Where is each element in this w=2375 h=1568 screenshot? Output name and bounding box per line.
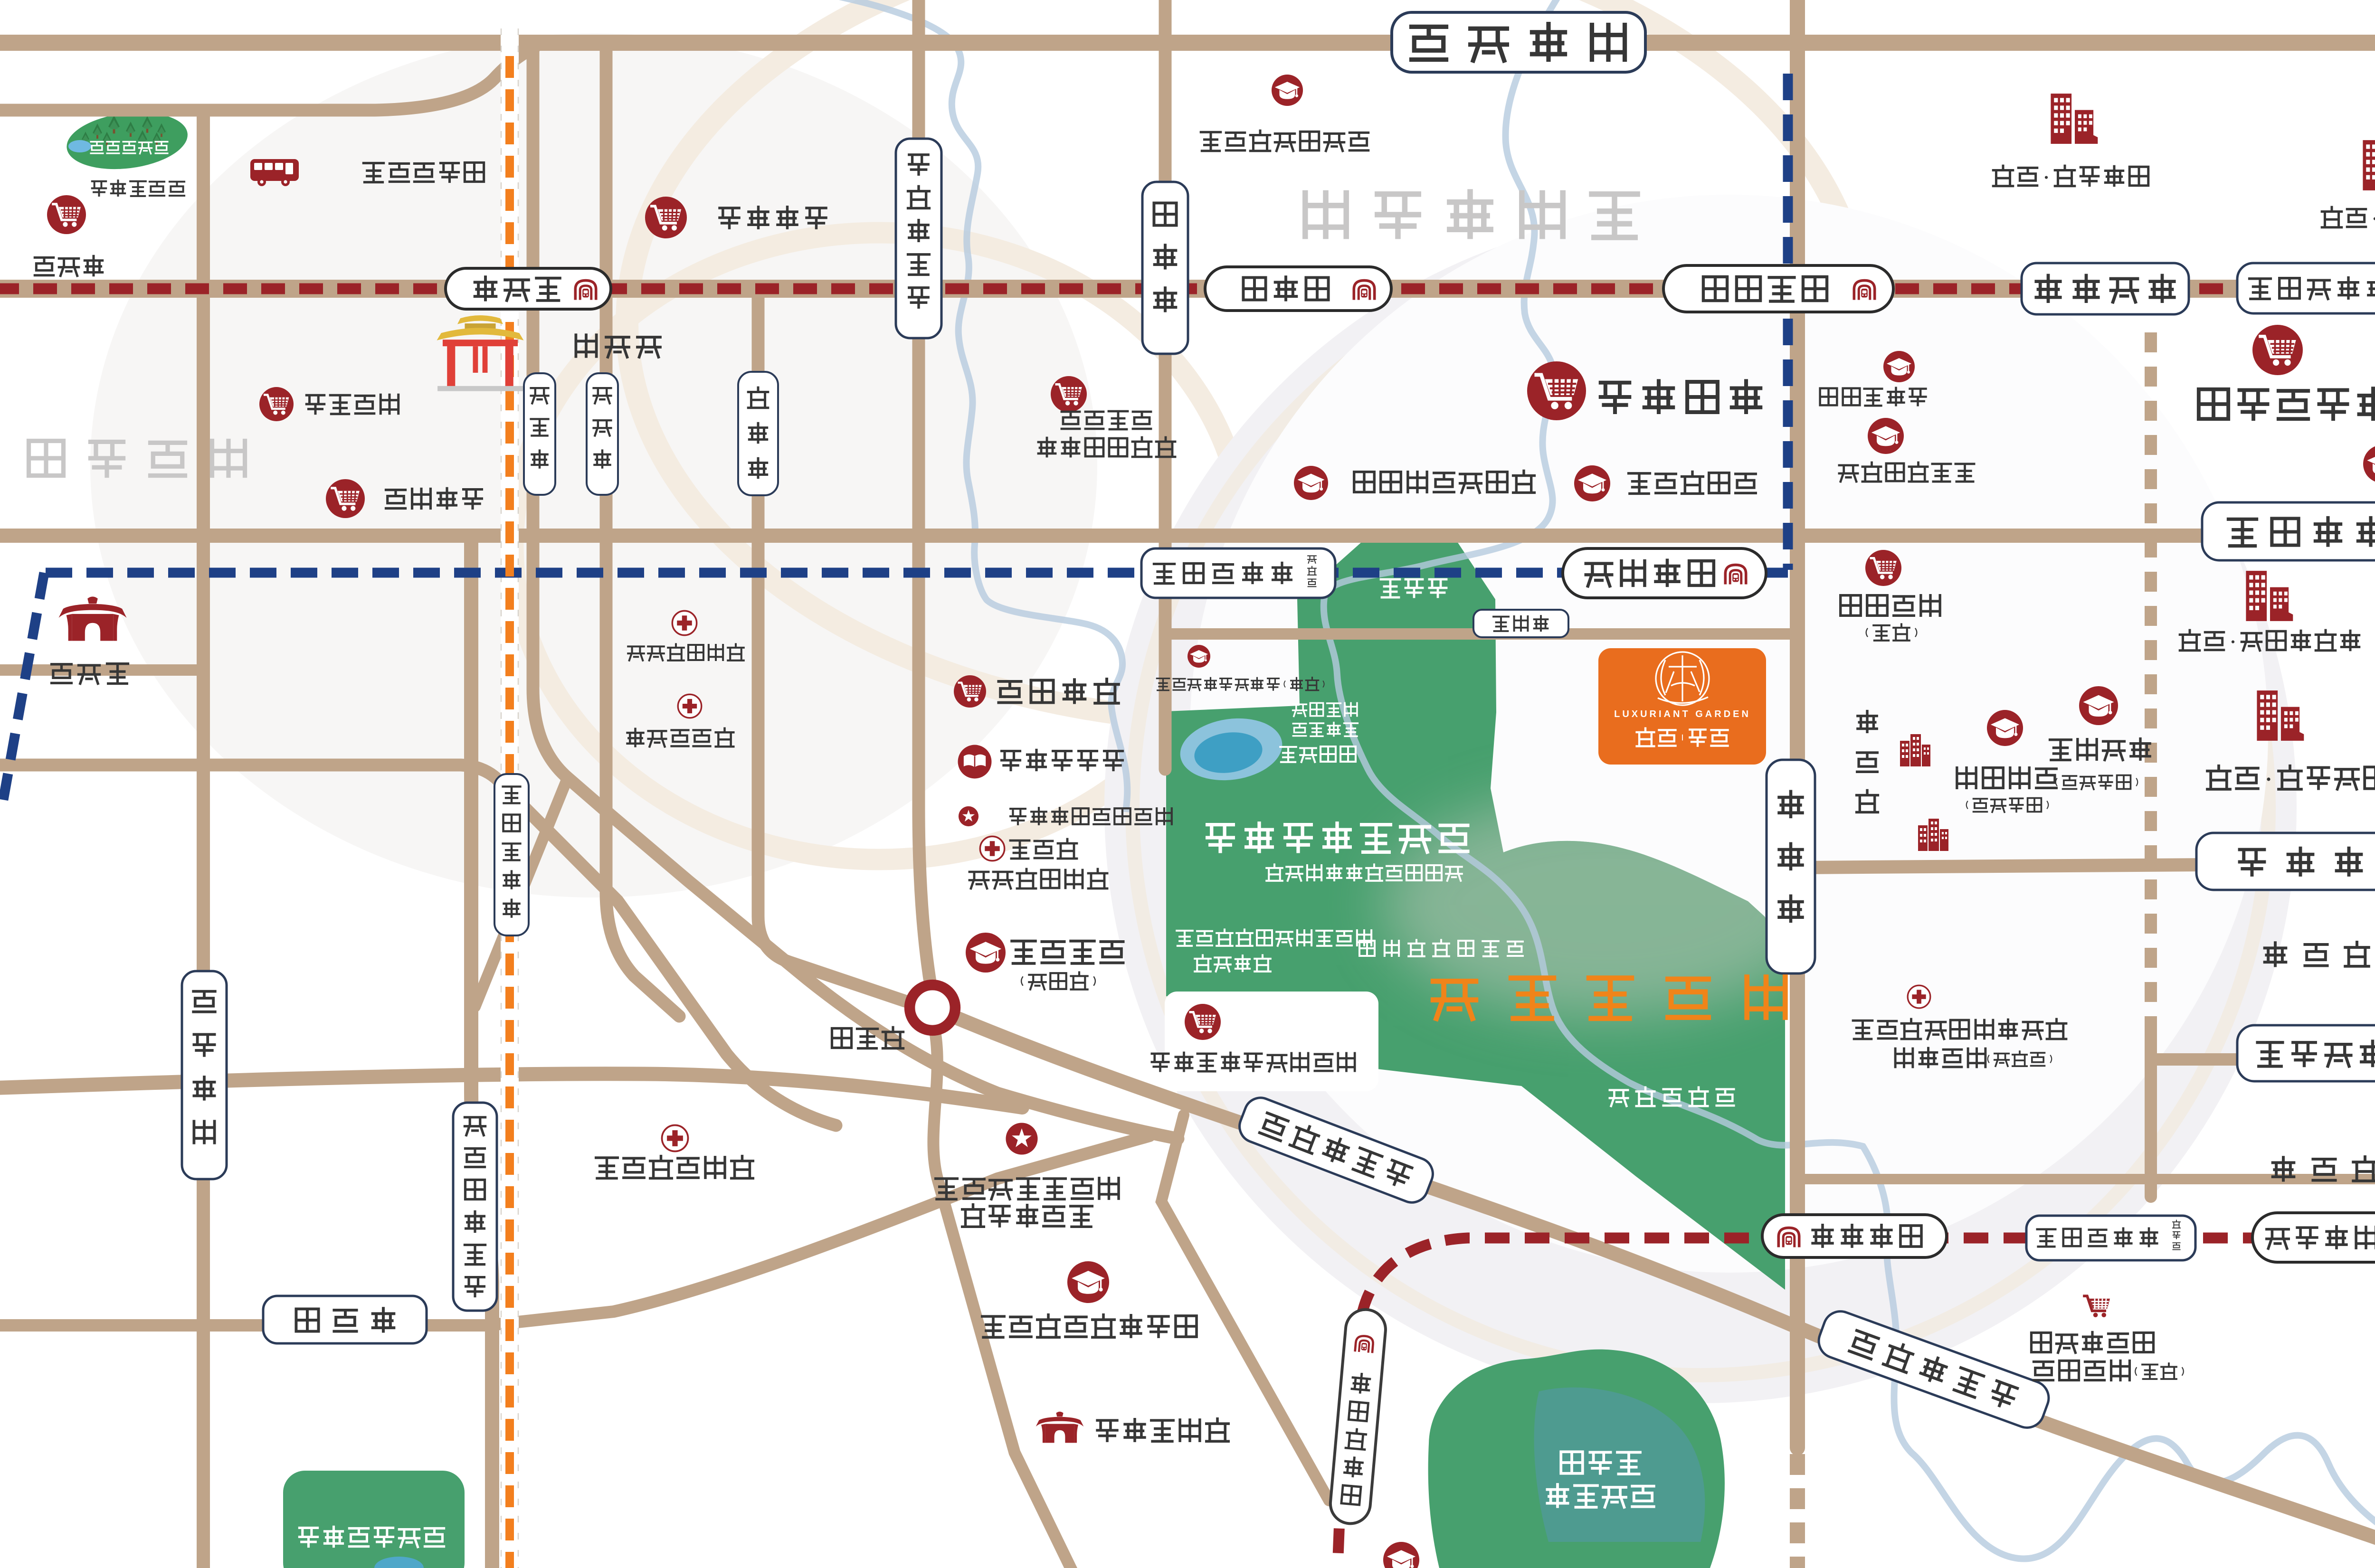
- svg-text:LUXURIANT GARDEN: LUXURIANT GARDEN: [1614, 709, 1751, 719]
